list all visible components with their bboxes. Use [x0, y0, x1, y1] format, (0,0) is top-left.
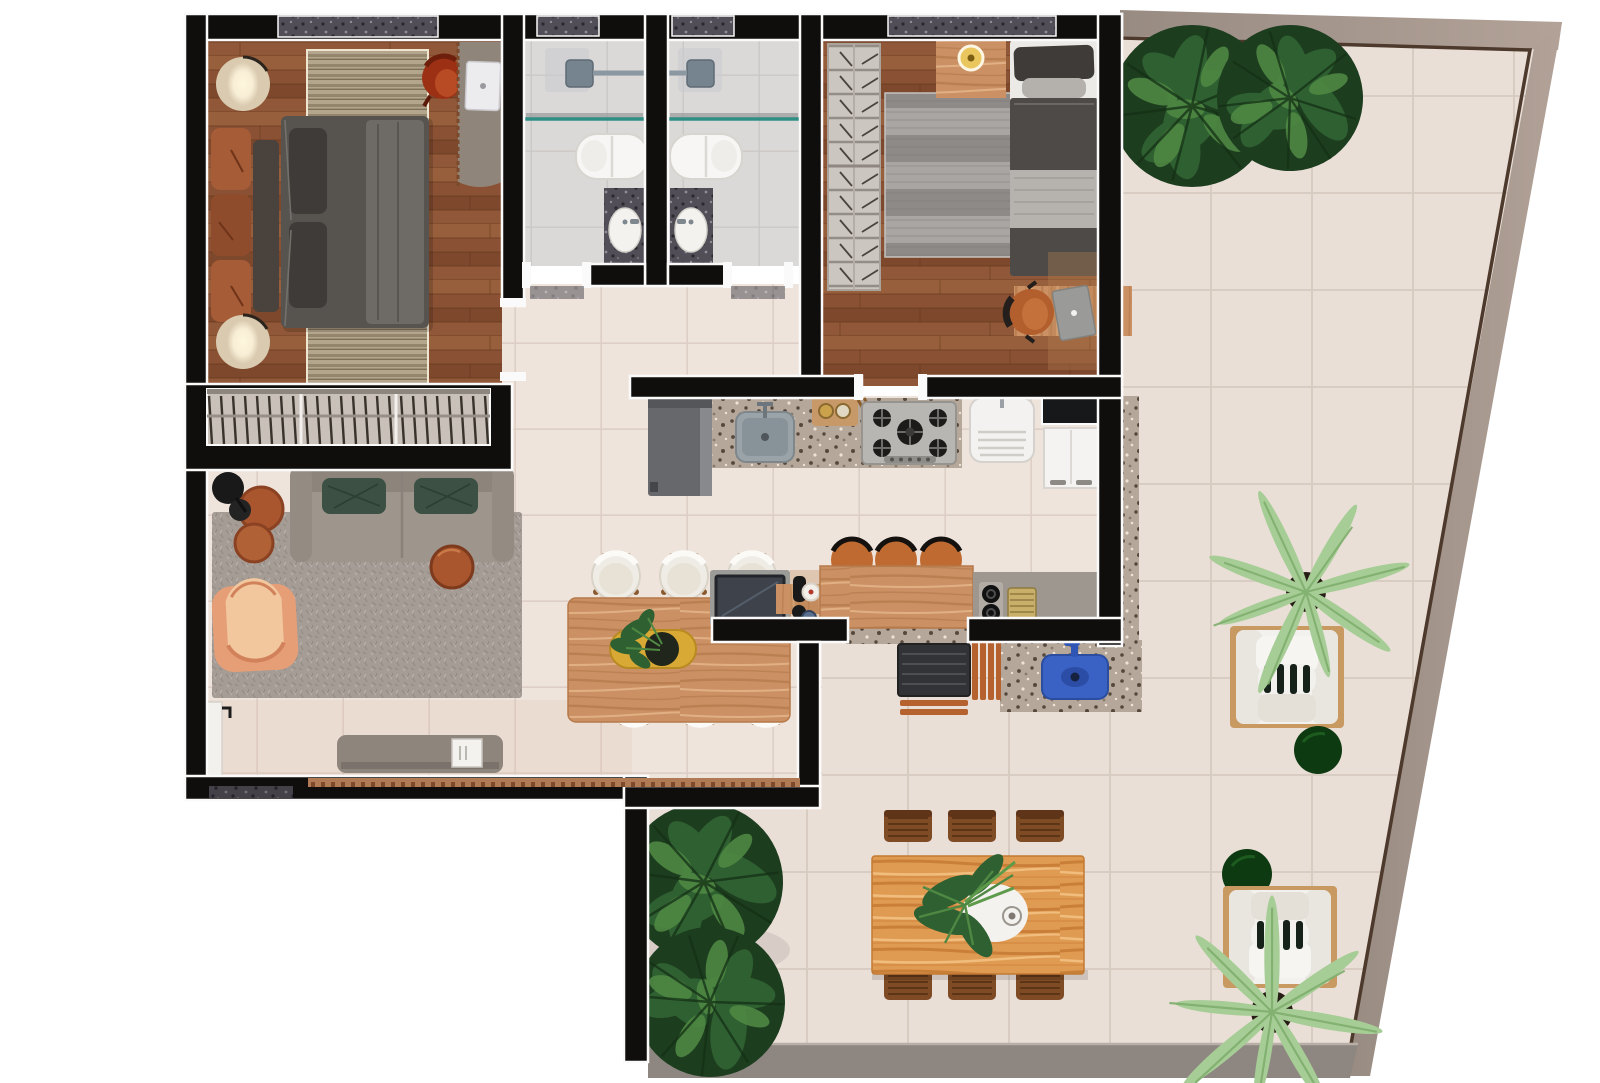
- vanity-2: [670, 188, 713, 266]
- curtain-track: [308, 778, 800, 787]
- low-wall-b: [968, 618, 1122, 642]
- master-desk: [458, 42, 502, 188]
- threshold-bath1: [530, 286, 584, 299]
- nightstand-bottom: [216, 315, 270, 369]
- floor-plan-svg: [0, 0, 1600, 1083]
- round-coffee-table: [431, 546, 473, 588]
- glass-partition-1: [524, 116, 645, 119]
- laundry-tub: [970, 392, 1034, 462]
- sink-2: [675, 208, 707, 252]
- gas-stove: [862, 402, 956, 464]
- wall-bath1-bottom: [590, 264, 645, 286]
- salmon-armchair: [211, 576, 300, 673]
- white-box: [452, 739, 482, 767]
- wall-dining-bottom: [624, 786, 820, 808]
- sofa: [290, 466, 514, 562]
- headboard-cushions: [211, 128, 251, 322]
- gourmet-granite-ledge: [1122, 396, 1139, 642]
- window-bath1: [537, 16, 599, 36]
- wall-bath2-right: [800, 14, 822, 396]
- corridor-floor: [502, 304, 630, 470]
- charcoal-grill: [898, 644, 970, 696]
- window-bedroom2: [888, 16, 1056, 36]
- outdoor-dining-set: [872, 810, 1088, 1000]
- double-bed: [211, 116, 433, 332]
- bedroom2-rug: [885, 93, 1013, 257]
- wall-bath-divider: [645, 14, 668, 286]
- toilet-1: [576, 134, 648, 179]
- wall-dining-right: [798, 642, 820, 808]
- floor-plan-image: Top-down 3D rendered floor plan of a two…: [0, 0, 1600, 1083]
- vanity-1: [604, 188, 647, 266]
- wall-kitchen-top-b: [926, 376, 1122, 398]
- wall-terrace-left: [624, 776, 648, 1062]
- bedroom2-nightstand: [936, 40, 1006, 98]
- sink-1: [609, 208, 641, 252]
- wall-apartment-right: [1098, 14, 1122, 646]
- wall-kitchen-top-a: [630, 376, 862, 398]
- glass-partition-2: [668, 116, 800, 119]
- washing-machine: [1044, 428, 1098, 488]
- wall-master-right: [502, 14, 524, 306]
- master-wardrobe: [207, 389, 490, 445]
- threshold-bath2: [731, 286, 785, 299]
- toilet-2: [670, 134, 742, 179]
- wall-bath2-bottom: [668, 264, 725, 286]
- tv-sideboard: [337, 735, 503, 773]
- low-wall-a: [712, 618, 848, 642]
- window-master: [278, 16, 438, 37]
- single-bed: [1010, 40, 1098, 276]
- shower-head-1: [566, 60, 593, 87]
- threshold-entry: [209, 786, 293, 798]
- kitchen-sink: [736, 404, 794, 462]
- window-bath2: [672, 16, 734, 36]
- nightstand-top: [216, 57, 270, 111]
- open-wardrobe: [828, 44, 880, 290]
- refrigerator: [648, 398, 712, 496]
- shower-head-2: [687, 60, 714, 87]
